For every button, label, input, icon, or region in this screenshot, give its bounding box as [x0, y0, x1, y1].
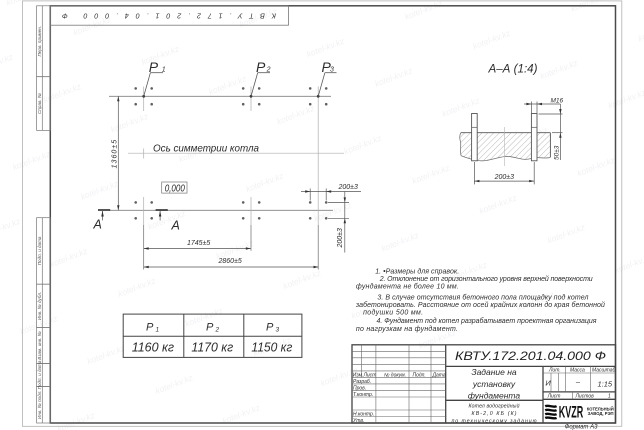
svg-text:Пров.: Пров. — [353, 385, 366, 391]
svg-text:Подп. и дата: Подп. и дата — [37, 236, 42, 265]
svg-text:Инв. № подл.: Инв. № подл. — [37, 390, 42, 419]
svg-text:установку: установку — [472, 379, 516, 389]
svg-text:P: P — [149, 59, 159, 75]
svg-text:Лист: Лист — [547, 393, 561, 399]
svg-text:1: 1 — [608, 393, 611, 399]
svg-text:50±3: 50±3 — [554, 145, 561, 160]
svg-text:2: 2 — [266, 67, 271, 74]
svg-text:Ось симметрии котла: Ось симметрии котла — [153, 142, 259, 154]
svg-text:Формат А3: Формат А3 — [565, 425, 598, 430]
svg-text:Справ. №: Справ. № — [37, 93, 42, 114]
svg-text:2860±5: 2860±5 — [218, 258, 242, 265]
svg-text:2: 2 — [215, 327, 220, 334]
svg-text:А: А — [93, 218, 102, 232]
svg-text:Н.контр.: Н.контр. — [353, 411, 374, 417]
svg-text:Утв.: Утв. — [353, 418, 364, 424]
svg-text:Листов: Листов — [575, 393, 595, 399]
svg-text:КВ-2,0 КБ (К): КВ-2,0 КБ (К) — [472, 411, 517, 417]
svg-text:200±3: 200±3 — [338, 184, 359, 191]
svg-text:P: P — [206, 322, 214, 334]
svg-text:фундамента: фундамента — [468, 390, 520, 400]
svg-text:А–А (1:4): А–А (1:4) — [488, 62, 538, 76]
svg-text:А: А — [171, 219, 180, 233]
svg-text:1360±5: 1360±5 — [112, 140, 119, 169]
svg-text:по техническому заданию: по техническому заданию — [452, 419, 537, 425]
svg-text:Перв. примен.: Перв. примен. — [37, 26, 42, 57]
svg-text:Котел водогрейный: Котел водогрейный — [469, 403, 520, 410]
svg-text:P: P — [146, 322, 154, 334]
svg-text:1. •Размеры для справок.: 1. •Размеры для справок. — [375, 267, 459, 275]
svg-text:Дата: Дата — [432, 372, 446, 378]
svg-text:2. Отклонение от горизонтал: 2. Отклонение от горизонтального уровня … — [379, 275, 593, 283]
svg-text:Масштаб: Масштаб — [592, 367, 616, 373]
svg-text:KVZR: KVZR — [559, 403, 584, 422]
svg-text:Разраб.: Разраб. — [353, 379, 371, 385]
svg-text:1150 кг: 1150 кг — [251, 341, 292, 355]
svg-text:3: 3 — [330, 67, 334, 74]
svg-text:P: P — [256, 59, 266, 75]
svg-text:ЗАВОД, РЭП: ЗАВОД, РЭП — [588, 411, 614, 416]
svg-text:И: И — [545, 378, 551, 387]
svg-text:1170 кг: 1170 кг — [191, 341, 233, 355]
svg-text:по нагрузкам на фундамент.: по нагрузкам на фундамент. — [356, 325, 458, 333]
svg-text:P: P — [266, 322, 274, 334]
svg-text:1:15: 1:15 — [597, 379, 612, 388]
svg-text:№ докум.: № докум. — [384, 372, 406, 378]
svg-text:М16: М16 — [551, 97, 564, 104]
svg-text:Т.контр.: Т.контр. — [353, 392, 373, 398]
svg-text:Инв. № дубл.: Инв. № дубл. — [37, 292, 42, 320]
svg-text:фундамента не более 10 мм.: фундамента не более 10 мм. — [356, 283, 459, 291]
svg-text:1745±5: 1745±5 — [187, 240, 210, 247]
svg-text:200±3: 200±3 — [494, 174, 515, 181]
svg-text:1: 1 — [156, 327, 160, 334]
svg-text:200±3: 200±3 — [337, 228, 344, 249]
svg-text:Подп.: Подп. — [413, 372, 426, 378]
svg-text:Масса: Масса — [570, 367, 585, 373]
svg-text:Лит.: Лит. — [548, 367, 561, 373]
svg-text:1160 кг: 1160 кг — [132, 341, 174, 355]
svg-text:0,000: 0,000 — [165, 183, 186, 194]
svg-text:Изм.Лист: Изм.Лист — [353, 372, 377, 378]
svg-text:КВТУ.172.201.04.000 Ф: КВТУ.172.201.04.000 Ф — [455, 349, 607, 363]
svg-text:забетонировать. Расстояние о: забетонировать. Расстояние от осей крайн… — [355, 301, 605, 309]
svg-text:1: 1 — [162, 67, 166, 74]
svg-text:4. Фундамент под котел раз: 4. Фундамент под котел разрабатывает про… — [377, 317, 597, 325]
svg-text:Взам. инв. №: Взам. инв. № — [37, 331, 42, 359]
svg-text:Подп. и дата: Подп. и дата — [37, 360, 42, 389]
svg-text:подушки 500 мм.: подушки 500 мм. — [363, 309, 423, 317]
svg-text:Задание на: Задание на — [471, 367, 517, 377]
svg-text:3. В случае отсутствия бет: 3. В случае отсутствия бетонного пола пл… — [377, 293, 588, 301]
svg-text:–: – — [575, 377, 581, 386]
svg-text:3: 3 — [276, 327, 280, 334]
